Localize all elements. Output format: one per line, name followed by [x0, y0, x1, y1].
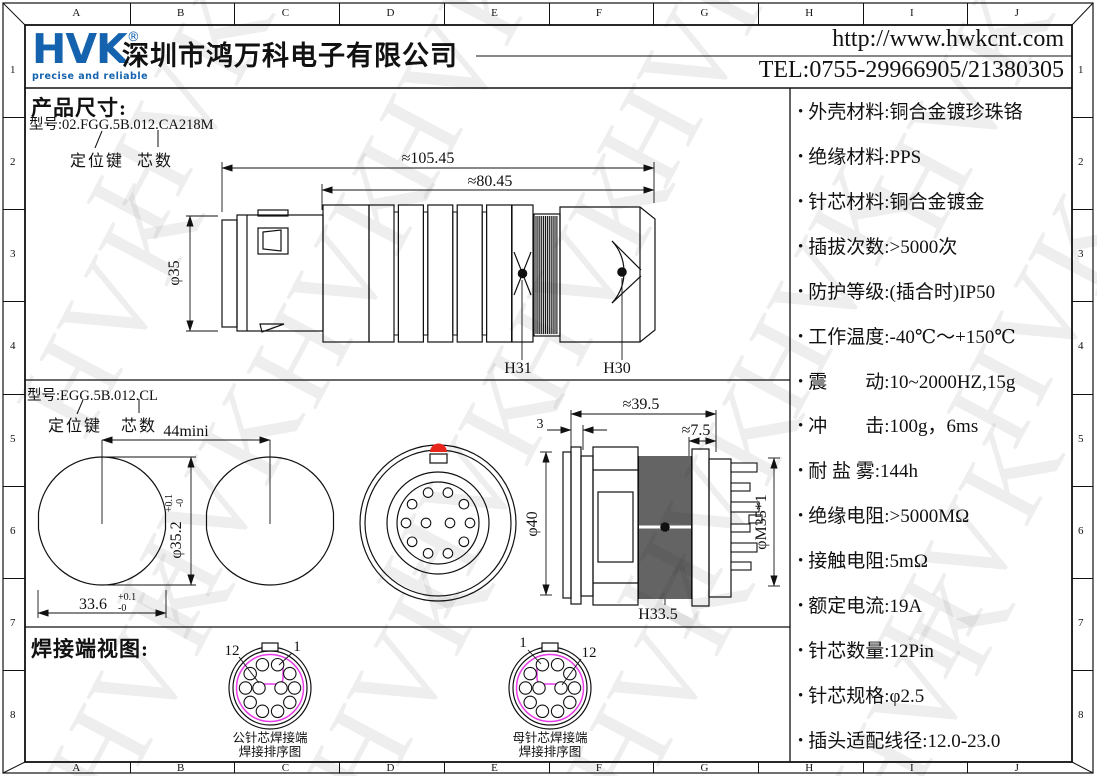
grid-column-label: I	[910, 7, 914, 19]
bullet-icon: •	[798, 284, 803, 300]
dim-flange-diameter: φ40	[524, 511, 541, 536]
grid-tick	[444, 3, 445, 25]
spec-text: 针芯数量:12Pin	[808, 641, 934, 662]
dim-cutout-width-tol-minus: -0	[118, 603, 126, 614]
bullet-icon: •	[798, 598, 803, 614]
bullet-icon: •	[798, 194, 803, 210]
grid-row-label: 3	[10, 248, 16, 260]
receptacle-front-view: φ40	[360, 444, 552, 602]
dim-h31: H31	[504, 360, 532, 377]
plug-drawing: ≈105.45 ≈80.45 φ35	[166, 150, 655, 377]
dim-h335: H33.5	[638, 606, 678, 623]
female-pin12-label: 12	[582, 645, 597, 661]
spec-panel: •外壳材料:铜合金镀珍珠铬•绝缘材料:PPS•针芯材料:铜合金镀金•插拔次数:>…	[791, 88, 1072, 762]
bullet-icon: •	[798, 329, 803, 345]
grid-tick	[3, 117, 25, 118]
spec-text: 针芯规格:φ2.5	[808, 686, 924, 707]
male-solder-caption-line2: 焊接排序图	[200, 745, 340, 759]
grid-column-label: F	[596, 762, 602, 774]
bullet-icon: •	[798, 418, 803, 434]
dim-cutout-width-tol-plus: +0.1	[118, 592, 136, 603]
grid-row-label: 7	[10, 617, 16, 629]
grid-column-label: J	[1015, 762, 1019, 774]
grid-tick	[130, 3, 131, 25]
grid-column-label: H	[805, 7, 813, 19]
solder-view-female: 1 12	[509, 635, 597, 729]
spec-item: •额定电流:19A	[791, 591, 1072, 618]
bullet-icon: •	[798, 374, 803, 390]
grid-tick	[339, 3, 340, 25]
receptacle-model-number: 型号:EGG.5B.012.CL	[27, 384, 158, 405]
spec-item: •接触电阻:5mΩ	[791, 546, 1072, 573]
grid-tick	[3, 486, 25, 487]
dim-washer-thickness: 3	[537, 417, 544, 432]
dim-panel-width: 44mini	[163, 423, 209, 440]
spec-text: 防护等级:(插合时)IP50	[808, 282, 995, 303]
title-block: HVK® precise and reliable 深圳市鸿万科电子有限公司 h…	[25, 25, 1072, 88]
grid-row-label: 4	[10, 340, 16, 352]
bullet-icon: •	[798, 553, 803, 569]
grid-column-label: E	[491, 7, 498, 19]
grid-tick	[234, 3, 235, 25]
grid-column-label: E	[491, 762, 498, 774]
company-url: http://www.hwkcnt.com	[832, 26, 1064, 53]
male-pin12-label: 12	[225, 643, 240, 659]
logo-text: HVK	[32, 25, 127, 73]
male-solder-caption: 公针芯焊接端 焊接排序图	[200, 731, 340, 759]
dim-back-length: ≈7.5	[682, 422, 711, 439]
spec-item: •冲 击:100g，6ms	[791, 411, 1072, 438]
solder-view-male: 12 1	[225, 639, 312, 729]
spec-item: •针芯规格:φ2.5	[791, 681, 1072, 708]
grid-column-label: G	[701, 762, 709, 774]
grid-row-label: 3	[1078, 248, 1084, 260]
panel-cutout-drawing: 44mini φ35.2 +0.1 -0 33.6 +0.1 -0	[38, 423, 334, 618]
grid-tick	[3, 670, 25, 671]
company-tel: TEL:0755-29966905/21380305	[759, 57, 1064, 84]
grid-tick	[1072, 670, 1093, 671]
grid-tick	[1072, 394, 1093, 395]
spec-item: •震 动:10~2000HZ,15g	[791, 367, 1072, 394]
grid-column-label: I	[910, 762, 914, 774]
spec-text: 工作温度:-40℃～+150℃	[808, 327, 1015, 348]
grid-tick	[549, 3, 550, 25]
dim-cutout-dia-tol-plus: +0.1	[164, 494, 175, 512]
spec-text: 冲 击:100g，6ms	[808, 416, 978, 437]
receptacle-side-view: ≈39.5 ≈7.5 3 φM35*1 H33.5	[537, 396, 781, 623]
grid-column-label: D	[386, 762, 394, 774]
grid-tick	[444, 762, 445, 773]
grid-column-label: J	[1015, 7, 1019, 19]
grid-column-label: H	[805, 762, 813, 774]
bullet-icon: •	[798, 149, 803, 165]
grid-tick	[549, 762, 550, 773]
bullet-icon: •	[798, 508, 803, 524]
grid-tick	[1072, 117, 1093, 118]
solder-view-title: 焊接端视图:	[31, 633, 149, 663]
spec-text: 震 动:10~2000HZ,15g	[808, 372, 1015, 393]
female-solder-caption: 母针芯焊接端 焊接排序图	[480, 731, 620, 759]
grid-row-label: 8	[10, 709, 16, 721]
grid-row-label: 1	[10, 64, 16, 76]
grid-column-label: F	[596, 7, 602, 19]
grid-row-label: 7	[1078, 617, 1084, 629]
grid-row-label: 6	[1078, 525, 1084, 537]
grid-column-label: A	[72, 7, 80, 19]
plug-key-label: 定位键	[70, 147, 124, 171]
dim-cutout-dia-tol-minus: -0	[175, 499, 186, 507]
spec-text: 针芯材料:铜合金镀金	[808, 192, 984, 213]
grid-row-label: 1	[1078, 64, 1084, 76]
spec-text: 绝缘材料:PPS	[808, 147, 921, 168]
spec-item: •耐 盐 雾:144h	[791, 456, 1072, 483]
grid-column-label: B	[177, 762, 184, 774]
male-pin1-label: 1	[293, 639, 301, 655]
grid-row-label: 4	[1078, 340, 1084, 352]
grid-tick	[863, 3, 864, 25]
spec-item: •绝缘材料:PPS	[791, 142, 1072, 169]
receptacle-cores-label: 芯数	[121, 412, 157, 436]
grid-tick	[863, 762, 864, 773]
grid-tick	[967, 762, 968, 773]
grid-column-label: G	[701, 7, 709, 19]
spec-item: •插头适配线径:12.0-23.0	[791, 726, 1072, 753]
grid-tick	[1072, 209, 1093, 210]
spec-text: 额定电流:19A	[808, 596, 922, 617]
male-solder-caption-line1: 公针芯焊接端	[200, 731, 340, 745]
bullet-icon: •	[798, 688, 803, 704]
spec-text: 插头适配线径:12.0-23.0	[808, 731, 1000, 752]
dim-cutout-width: 33.6	[79, 596, 107, 613]
bullet-icon: •	[798, 643, 803, 659]
grid-column-label: C	[282, 762, 289, 774]
grid-row-label: 2	[10, 156, 16, 168]
spec-item: •绝缘电阻:>5000MΩ	[791, 501, 1072, 528]
grid-tick	[339, 762, 340, 773]
dim-plug-diameter: φ35	[166, 260, 183, 285]
grid-tick	[3, 301, 25, 302]
spec-text: 外壳材料:铜合金镀珍珠铬	[808, 102, 1022, 123]
grid-tick	[130, 762, 131, 773]
grid-column-label: B	[177, 7, 184, 19]
dim-front-length: ≈80.45	[468, 173, 513, 190]
spec-text: 耐 盐 雾:144h	[808, 461, 918, 482]
bullet-icon: •	[798, 239, 803, 255]
grid-row-label: 6	[10, 525, 16, 537]
grid-column-label: D	[386, 7, 394, 19]
spec-item: •工作温度:-40℃～+150℃	[791, 322, 1072, 349]
female-solder-caption-line1: 母针芯焊接端	[480, 731, 620, 745]
female-pin1-label: 1	[519, 635, 527, 651]
dim-mount-thread: φM35*1	[753, 494, 770, 549]
grid-tick	[758, 762, 759, 773]
grid-tick	[967, 3, 968, 25]
bullet-icon: •	[798, 733, 803, 749]
spec-item: •针芯数量:12Pin	[791, 636, 1072, 663]
spec-item: •针芯材料:铜合金镀金	[791, 187, 1072, 214]
spec-text: 绝缘电阻:>5000MΩ	[808, 506, 969, 527]
spec-item: •插拔次数:>5000次	[791, 232, 1072, 259]
grid-column-label: C	[282, 7, 289, 19]
grid-tick	[3, 578, 25, 579]
grid-tick	[3, 209, 25, 210]
spec-text: 接触电阻:5mΩ	[808, 551, 928, 572]
grid-row-label: 5	[10, 433, 16, 445]
grid-tick	[758, 3, 759, 25]
grid-row-label: 2	[1078, 156, 1084, 168]
datasheet-page: HVKHVKHVKHVKHVKHVKHVKHVKHVKHVKHVKHVKHVKH…	[0, 0, 1097, 776]
plug-cores-label: 芯数	[137, 147, 173, 171]
grid-tick	[1072, 578, 1093, 579]
dim-receptacle-length: ≈39.5	[623, 396, 660, 413]
grid-tick	[234, 762, 235, 773]
model-leaders	[77, 130, 158, 414]
receptacle-key-label: 定位键	[48, 412, 102, 436]
grid-row-label: 5	[1078, 433, 1084, 445]
spec-text: 插拔次数:>5000次	[808, 237, 957, 258]
dim-cutout-diameter: φ35.2	[168, 521, 185, 558]
grid-row-label: 8	[1078, 709, 1084, 721]
grid-tick	[653, 762, 654, 773]
bullet-icon: •	[798, 104, 803, 120]
grid-column-label: A	[72, 762, 80, 774]
grid-tick	[3, 394, 25, 395]
logo-tagline: precise and reliable	[32, 72, 148, 82]
spec-item: •防护等级:(插合时)IP50	[791, 277, 1072, 304]
grid-tick	[653, 3, 654, 25]
plug-model-number: 型号:02.FGG.5B.012.CA218M	[29, 113, 214, 134]
dim-overall-length: ≈105.45	[402, 150, 455, 167]
bullet-icon: •	[798, 463, 803, 479]
grid-tick	[1072, 301, 1093, 302]
company-name: 深圳市鸿万科电子有限公司	[122, 34, 458, 73]
female-solder-caption-line2: 焊接排序图	[480, 745, 620, 759]
grid-tick	[1072, 486, 1093, 487]
dim-h30: H30	[603, 360, 631, 377]
spec-item: •外壳材料:铜合金镀珍珠铬	[791, 97, 1072, 124]
